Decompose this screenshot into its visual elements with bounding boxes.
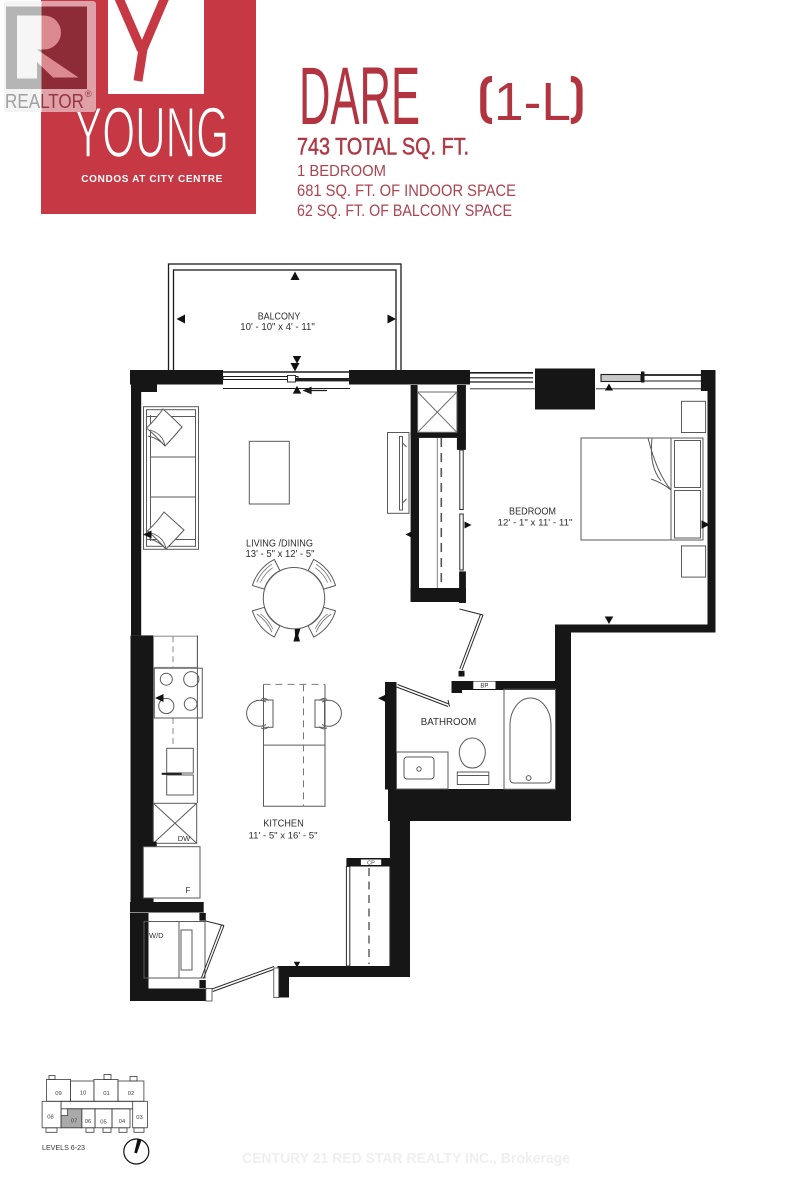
svg-text:681 SQ. FT. OF INDOOR SPACE: 681 SQ. FT. OF INDOOR SPACE <box>297 182 516 200</box>
svg-text:05: 05 <box>100 1120 106 1126</box>
svg-text:06: 06 <box>85 1119 91 1125</box>
svg-text:03: 03 <box>136 1115 142 1121</box>
svg-text:BEDROOM: BEDROOM <box>509 507 556 518</box>
svg-text:YOUNG: YOUNG <box>74 94 229 173</box>
svg-text:DARE: DARE <box>299 51 420 142</box>
svg-text:01: 01 <box>103 1091 109 1097</box>
svg-text:02: 02 <box>128 1091 134 1097</box>
svg-text:BALCONY: BALCONY <box>258 311 301 323</box>
svg-text:12' - 1" x 11' - 11": 12' - 1" x 11' - 11" <box>498 518 573 529</box>
svg-text:CENTURY 21 RED STAR REALTY INC: CENTURY 21 RED STAR REALTY INC., Brokera… <box>242 1151 570 1167</box>
svg-text:10' - 10" x 4' - 11": 10' - 10" x 4' - 11" <box>240 322 315 333</box>
svg-text:CONDOS AT CITY CENTRE: CONDOS AT CITY CENTRE <box>81 174 222 185</box>
svg-text:10: 10 <box>80 1091 86 1097</box>
svg-text:11' - 5" x 16' - 5": 11' - 5" x 16' - 5" <box>249 831 318 842</box>
svg-text:LEVELS 6-23: LEVELS 6-23 <box>42 1143 85 1152</box>
svg-text:DW: DW <box>178 834 191 843</box>
svg-text:08: 08 <box>47 1115 53 1121</box>
svg-text:13' - 5" x 12' - 5": 13' - 5" x 12' - 5" <box>246 549 315 560</box>
svg-text:62 SQ. FT. OF BALCONY SPACE: 62 SQ. FT. OF BALCONY SPACE <box>297 202 512 220</box>
svg-text:®: ® <box>85 89 92 99</box>
svg-text:04: 04 <box>119 1119 126 1125</box>
svg-text:1 BEDROOM: 1 BEDROOM <box>297 163 386 180</box>
svg-text:KITCHEN: KITCHEN <box>263 819 304 830</box>
svg-text:F: F <box>186 886 191 895</box>
svg-text:07: 07 <box>71 1119 77 1125</box>
svg-text:BP: BP <box>480 684 488 690</box>
svg-text:09: 09 <box>55 1091 61 1097</box>
svg-text:W/D: W/D <box>149 931 164 940</box>
svg-text:LIVING /DINING: LIVING /DINING <box>246 539 313 550</box>
svg-text:BATHROOM: BATHROOM <box>421 717 477 728</box>
svg-text:CP: CP <box>367 861 375 867</box>
svg-text:743 TOTAL SQ. FT.: 743 TOTAL SQ. FT. <box>297 134 469 161</box>
svg-text:1-L: 1-L <box>494 73 571 132</box>
